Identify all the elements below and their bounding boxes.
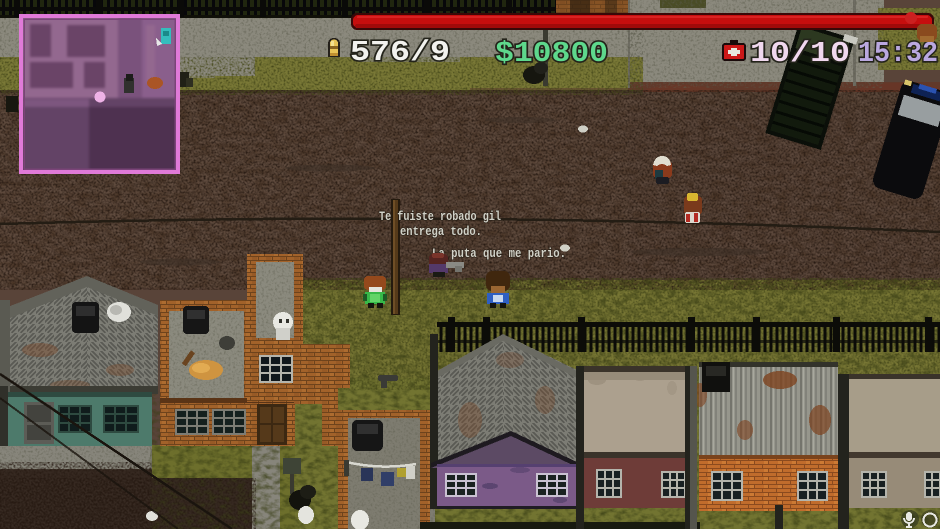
- svg-text:La puta que me pario.: La puta que me pario.: [432, 247, 566, 261]
- svg-text:$10800: $10800: [495, 37, 608, 70]
- svg-text:10/10: 10/10: [750, 37, 850, 70]
- svg-text:576/9: 576/9: [350, 36, 450, 69]
- svg-text:Te fuiste robado gil: Te fuiste robado gil: [379, 210, 501, 224]
- svg-text:entrega todo.: entrega todo.: [400, 225, 482, 239]
